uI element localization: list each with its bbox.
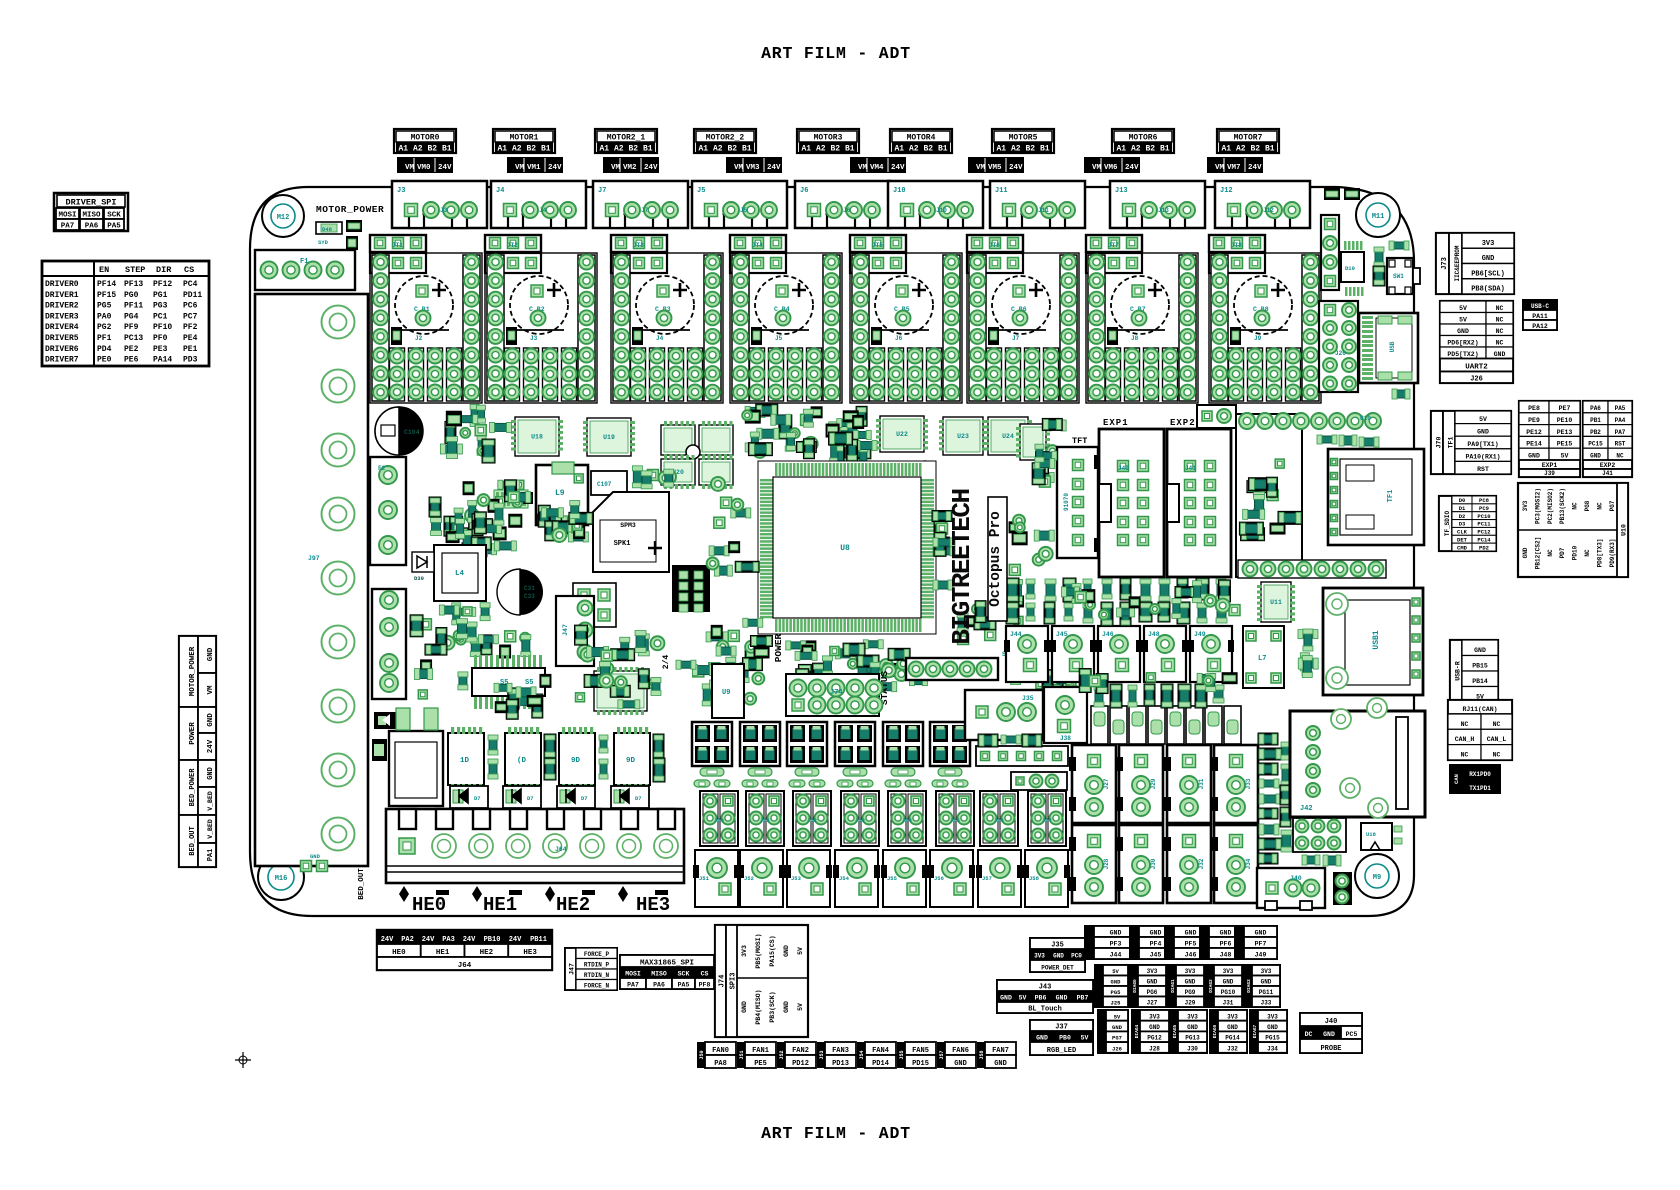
svg-text:NC: NC	[1493, 721, 1501, 728]
svg-text:B2: B2	[727, 145, 737, 154]
svg-text:USB: USB	[1389, 341, 1396, 352]
svg-text:HE2: HE2	[556, 894, 590, 916]
svg-text:J4: J4	[496, 187, 504, 195]
svg-text:PA5: PA5	[107, 223, 121, 231]
svg-text:3V3: 3V3	[1147, 968, 1158, 975]
svg-text:J31: J31	[1223, 1000, 1234, 1007]
svg-text:RGB_LED: RGB_LED	[1047, 1047, 1076, 1055]
svg-text:PB3(SCK): PB3(SCK)	[769, 991, 776, 1022]
svg-text:CLK: CLK	[1457, 529, 1468, 536]
svg-text:J2: J2	[415, 335, 423, 342]
svg-text:D1: D1	[1459, 505, 1466, 512]
svg-text:B1: B1	[1040, 145, 1050, 154]
svg-text:SW1: SW1	[1393, 273, 1404, 280]
svg-text:U9: U9	[722, 689, 730, 697]
svg-text:J61: J61	[760, 817, 771, 824]
svg-text:PC1: PC1	[153, 312, 168, 321]
svg-text:MOTOR7: MOTOR7	[1234, 134, 1263, 143]
svg-text:PE4: PE4	[183, 334, 198, 343]
svg-text:V_BED: V_BED	[207, 819, 214, 839]
svg-text:VM: VM	[976, 164, 986, 172]
svg-text:B2: B2	[427, 145, 437, 154]
svg-text:PE3: PE3	[153, 345, 168, 354]
svg-text:JT4: JT4	[752, 242, 763, 249]
svg-text:D7: D7	[527, 795, 534, 802]
svg-text:GND: GND	[1110, 930, 1122, 937]
svg-text:NC: NC	[1584, 549, 1591, 557]
svg-text:5V: 5V	[797, 947, 804, 955]
svg-text:J11: J11	[1038, 207, 1049, 214]
svg-text:5V: 5V	[1112, 968, 1119, 975]
svg-text:J64: J64	[902, 817, 913, 824]
svg-text:GND: GND	[994, 1060, 1007, 1068]
svg-text:M9: M9	[1373, 874, 1381, 882]
svg-text:24V: 24V	[463, 936, 476, 944]
svg-text:HE2: HE2	[480, 949, 494, 957]
svg-text:3V3: 3V3	[1034, 953, 1045, 960]
svg-text:J34: J34	[1245, 858, 1252, 869]
svg-text:PE0: PE0	[97, 356, 112, 365]
svg-text:J10: J10	[936, 207, 947, 214]
svg-text:3V3: 3V3	[1482, 240, 1495, 248]
svg-text:PE6: PE6	[124, 356, 139, 365]
svg-text:24V: 24V	[1248, 164, 1262, 172]
svg-text:HE1: HE1	[483, 894, 517, 916]
svg-text:J60: J60	[714, 817, 724, 824]
svg-text:PC9: PC9	[1479, 505, 1489, 512]
svg-text:24V: 24V	[1009, 164, 1023, 172]
svg-text:RST: RST	[1615, 441, 1626, 448]
svg-text:J30: J30	[1150, 858, 1157, 869]
svg-text:GND: GND	[1590, 452, 1601, 459]
svg-text:J47: J47	[562, 624, 569, 636]
svg-text:PG3: PG3	[153, 302, 168, 311]
svg-text:ART FILM - ADT: ART FILM - ADT	[761, 44, 911, 63]
svg-text:J58: J58	[1029, 875, 1040, 882]
svg-text:GND: GND	[1220, 930, 1232, 937]
svg-text:JT1: JT1	[392, 242, 403, 249]
svg-text:L4: L4	[455, 570, 465, 578]
svg-text:PG5: PG5	[97, 302, 112, 311]
svg-text:PA7: PA7	[61, 223, 75, 231]
svg-text:J46: J46	[1102, 631, 1114, 638]
svg-text:J57: J57	[982, 875, 992, 882]
svg-text:TF_SDIO: TF_SDIO	[1444, 511, 1451, 537]
svg-text:PG6: PG6	[1147, 989, 1158, 996]
svg-text:GND: GND	[1323, 1031, 1335, 1038]
svg-text:3V3: 3V3	[1261, 968, 1272, 975]
svg-text:D2: D2	[1459, 513, 1466, 520]
svg-text:GND: GND	[1482, 255, 1495, 263]
svg-text:GND: GND	[1000, 995, 1012, 1002]
svg-text:J32: J32	[1198, 858, 1205, 869]
svg-text:24V: 24V	[548, 164, 562, 172]
svg-text:U8: U8	[840, 544, 850, 553]
svg-text:PE9: PE9	[1528, 417, 1540, 424]
svg-text:JT6: JT6	[989, 242, 1000, 249]
svg-text:PG10: PG10	[1221, 989, 1236, 996]
svg-text:PB10: PB10	[484, 936, 501, 944]
svg-text:J55: J55	[887, 875, 898, 882]
svg-text:PF13: PF13	[124, 280, 143, 289]
svg-text:L9: L9	[555, 489, 565, 498]
svg-text:NC: NC	[1461, 721, 1469, 728]
svg-text:A1: A1	[1116, 145, 1126, 154]
svg-text:3V3: 3V3	[1227, 1013, 1238, 1020]
svg-text:J44: J44	[1110, 952, 1122, 959]
svg-text:1D: 1D	[460, 757, 470, 765]
svg-text:GND: GND	[1147, 979, 1158, 986]
svg-text:USB-R: USB-R	[1454, 661, 1461, 681]
svg-text:GND: GND	[1255, 930, 1267, 937]
svg-text:MOTOR2_1: MOTOR2_1	[607, 134, 646, 143]
svg-text:PF12: PF12	[153, 280, 172, 289]
svg-text:PA14: PA14	[153, 356, 172, 365]
svg-text:PD4: PD4	[97, 345, 112, 354]
svg-text:S5: S5	[525, 679, 533, 687]
svg-text:PE14: PE14	[1526, 441, 1542, 448]
svg-text:GND: GND	[954, 1060, 967, 1068]
svg-text:NC: NC	[1616, 452, 1624, 459]
svg-text:J7: J7	[1012, 335, 1020, 342]
svg-text:CAN_L: CAN_L	[1487, 736, 1507, 743]
svg-text:J13: J13	[1115, 187, 1128, 195]
svg-text:J67: J67	[1042, 817, 1052, 824]
svg-text:D7: D7	[581, 795, 588, 802]
svg-text:GND: GND	[783, 945, 790, 957]
svg-text:B2: B2	[1145, 145, 1155, 154]
svg-text:DRIVER7: DRIVER7	[45, 356, 79, 365]
svg-text:U18: U18	[1366, 831, 1377, 838]
svg-text:PC6: PC6	[183, 302, 198, 311]
svg-text:J31: J31	[1198, 778, 1205, 789]
svg-text:PG12: PG12	[1147, 1035, 1162, 1042]
svg-text:PD2: PD2	[1479, 544, 1489, 551]
svg-text:PA0: PA0	[97, 312, 112, 321]
svg-text:5V: 5V	[1459, 316, 1467, 323]
svg-text:(D: (D	[517, 757, 527, 765]
svg-text:PA4: PA4	[1615, 417, 1626, 424]
svg-text:PG7: PG7	[1112, 1035, 1122, 1042]
svg-text:PG8: PG8	[1584, 500, 1591, 511]
svg-text:J45: J45	[1150, 952, 1162, 959]
svg-text:VM6: VM6	[1104, 164, 1118, 172]
svg-text:TFT: TFT	[1072, 436, 1087, 446]
svg-text:D3: D3	[1459, 521, 1466, 528]
svg-text:VM4: VM4	[870, 164, 884, 172]
svg-text:FAN2: FAN2	[792, 1047, 809, 1055]
svg-text:PB6: PB6	[1035, 995, 1047, 1002]
svg-text:PA3: PA3	[442, 936, 455, 944]
svg-text:GND: GND	[1494, 351, 1506, 358]
svg-text:VM: VM	[611, 164, 621, 172]
svg-text:J7: J7	[598, 187, 606, 195]
svg-text:J8: J8	[1131, 335, 1139, 342]
svg-text:BIGTREETECH: BIGTREETECH	[947, 489, 977, 644]
svg-text:VM: VM	[405, 164, 415, 172]
svg-text:GND: GND	[1477, 428, 1489, 435]
svg-text:U23: U23	[957, 433, 969, 440]
svg-text:24V: 24V	[509, 936, 522, 944]
svg-text:ART FILM - ADT: ART FILM - ADT	[761, 1124, 911, 1143]
svg-text:TX1PD1: TX1PD1	[1469, 785, 1491, 792]
svg-text:3V3: 3V3	[1223, 968, 1234, 975]
svg-text:BED_POWER: BED_POWER	[189, 768, 197, 807]
svg-text:POWER: POWER	[773, 633, 784, 662]
svg-text:Octopus Pro: Octopus Pro	[988, 511, 1004, 607]
svg-text:D48: D48	[322, 226, 333, 233]
svg-text:NC: NC	[1496, 316, 1504, 323]
svg-text:VM5: VM5	[988, 164, 1002, 172]
svg-text:NC: NC	[1572, 502, 1579, 510]
svg-text:PC3(MOSI2): PC3(MOSI2)	[1534, 488, 1541, 524]
svg-text:D7: D7	[635, 795, 642, 802]
svg-text:J27: J27	[1103, 778, 1110, 789]
svg-text:EXP2: EXP2	[1600, 462, 1616, 469]
svg-text:J48: J48	[1220, 952, 1232, 959]
svg-text:BED_OUT: BED_OUT	[189, 826, 197, 855]
svg-text:J49: J49	[1194, 631, 1206, 638]
svg-text:J25: J25	[1111, 1000, 1122, 1007]
svg-text:M12: M12	[277, 214, 290, 222]
svg-text:3V3: 3V3	[1149, 1013, 1160, 1020]
svg-text:TF1: TF1	[1387, 490, 1395, 503]
svg-text:IIC&EEPROM: IIC&EEPROM	[1454, 245, 1461, 281]
svg-text:MOTOR0: MOTOR0	[411, 134, 440, 143]
svg-text:PD12: PD12	[792, 1060, 809, 1068]
svg-text:JT3: JT3	[633, 242, 644, 249]
svg-text:PC13: PC13	[124, 334, 143, 343]
svg-text:PA10(RX1): PA10(RX1)	[1465, 454, 1500, 461]
svg-text:U22: U22	[896, 431, 908, 438]
svg-text:DRIVER0: DRIVER0	[45, 280, 79, 289]
svg-text:24V: 24V	[1125, 164, 1139, 172]
svg-text:PE12: PE12	[1526, 429, 1542, 436]
svg-text:HE0: HE0	[392, 949, 406, 957]
svg-text:PC0: PC0	[1071, 953, 1082, 960]
svg-text:PC12: PC12	[1477, 529, 1490, 536]
svg-text:PF15: PF15	[97, 291, 116, 300]
svg-text:EXP2: EXP2	[1170, 418, 1196, 428]
svg-text:C107: C107	[597, 481, 612, 488]
svg-text:PA9[TX1): PA9[TX1)	[1467, 441, 1498, 448]
svg-text:J49: J49	[1255, 952, 1267, 959]
svg-text:PB12[CS2]: PB12[CS2]	[1534, 537, 1541, 569]
svg-text:B1: B1	[541, 145, 551, 154]
svg-text:U18: U18	[531, 434, 543, 441]
svg-text:PB5(MOSI): PB5(MOSI)	[755, 933, 762, 968]
svg-text:A1: A1	[698, 145, 708, 154]
svg-text:DRIVER5: DRIVER5	[45, 334, 79, 343]
svg-text:JT2: JT2	[507, 242, 518, 249]
svg-text:J5: J5	[740, 207, 748, 214]
svg-text:J6: J6	[843, 207, 851, 214]
svg-text:PA8: PA8	[714, 1060, 727, 1068]
svg-text:PC5: PC5	[1346, 1031, 1358, 1038]
svg-text:A1: A1	[1221, 145, 1231, 154]
svg-text:SCK: SCK	[678, 971, 690, 978]
svg-text:RX1PD0: RX1PD0	[1469, 771, 1491, 778]
svg-text:NC: NC	[1493, 752, 1501, 759]
svg-text:PD8[TX3]: PD8[TX3]	[1596, 539, 1603, 568]
svg-text:PE1: PE1	[183, 345, 198, 354]
svg-text:PB6[SCL): PB6[SCL)	[1471, 270, 1505, 278]
svg-text:PROBE: PROBE	[1320, 1045, 1341, 1053]
svg-text:NC: NC	[1496, 339, 1504, 346]
svg-text:B1: B1	[742, 145, 752, 154]
svg-text:24V: 24V	[644, 164, 658, 172]
svg-text:NC: NC	[1496, 305, 1504, 312]
svg-text:VM: VM	[207, 685, 215, 695]
svg-text:HE3: HE3	[523, 949, 537, 957]
svg-text:J3: J3	[440, 207, 448, 214]
svg-text:MOTOR5: MOTOR5	[1009, 134, 1038, 143]
svg-text:CAN: CAN	[1453, 774, 1460, 784]
svg-text:PF9: PF9	[124, 323, 139, 332]
svg-text:PG1: PG1	[153, 291, 168, 300]
svg-text:J6: J6	[895, 335, 903, 342]
svg-text:U24: U24	[1002, 433, 1014, 440]
svg-text:J40: J40	[1325, 1018, 1338, 1026]
svg-text:CS: CS	[184, 265, 194, 275]
svg-text:D10: D10	[1345, 265, 1355, 272]
svg-text:PB8(SDA): PB8(SDA)	[1471, 286, 1505, 294]
svg-text:UART2: UART2	[1465, 364, 1488, 372]
svg-text:J62: J62	[807, 817, 817, 824]
svg-text:GND: GND	[1150, 930, 1162, 937]
svg-text:9D: 9D	[626, 757, 636, 765]
svg-text:5V: 5V	[797, 1003, 804, 1011]
svg-text:J54: J54	[839, 875, 850, 882]
svg-text:PC2(MISO2): PC2(MISO2)	[1547, 488, 1554, 524]
svg-text:PF5: PF5	[1185, 941, 1197, 948]
svg-text:FAN5: FAN5	[912, 1047, 929, 1055]
svg-text:VM: VM	[734, 164, 744, 172]
svg-text:GND: GND	[207, 767, 215, 780]
svg-text:PC10: PC10	[1477, 513, 1490, 520]
svg-text:SPI3: SPI3	[730, 973, 738, 990]
svg-text:J42: J42	[1300, 805, 1313, 813]
svg-text:PB15: PB15	[1472, 663, 1488, 670]
svg-text:PB11: PB11	[530, 936, 547, 944]
svg-text:24V: 24V	[422, 936, 435, 944]
svg-text:J34: J34	[1267, 1045, 1278, 1052]
svg-text:PD6[RX2): PD6[RX2)	[1447, 339, 1478, 346]
svg-text:J40: J40	[1290, 875, 1302, 882]
svg-text:PG14: PG14	[1225, 1035, 1240, 1042]
svg-text:PB2: PB2	[1590, 429, 1601, 436]
svg-text:GND: GND	[741, 1001, 748, 1013]
svg-text:M11: M11	[1372, 213, 1385, 221]
svg-text:B1: B1	[1160, 145, 1170, 154]
svg-text:A2: A2	[1236, 145, 1246, 154]
svg-text:J5: J5	[775, 335, 783, 342]
svg-text:VM: VM	[1215, 164, 1225, 172]
svg-text:JT7: JT7	[1108, 242, 1119, 249]
svg-text:MISO: MISO	[651, 971, 667, 978]
svg-text:GND: GND	[1528, 452, 1540, 459]
svg-text:TF1: TF1	[1447, 437, 1454, 449]
svg-text:J51: J51	[699, 875, 710, 882]
svg-text:FAN7: FAN7	[992, 1047, 1009, 1055]
svg-text:PD15: PD15	[912, 1060, 929, 1068]
svg-text:GND: GND	[1149, 1024, 1160, 1031]
svg-text:PD11: PD11	[183, 291, 202, 300]
svg-text:PE2: PE2	[124, 345, 139, 354]
svg-text:NC: NC	[1596, 502, 1603, 510]
svg-text:J10: J10	[893, 187, 906, 195]
svg-text:J4: J4	[656, 335, 664, 342]
svg-text:3V3: 3V3	[741, 945, 748, 957]
svg-text:A2: A2	[909, 145, 919, 154]
svg-text:GND: GND	[1267, 1024, 1278, 1031]
svg-text:PG2: PG2	[97, 323, 112, 332]
svg-text:J47: J47	[569, 963, 576, 975]
svg-text:NC: NC	[1461, 752, 1469, 759]
svg-text:FAN6: FAN6	[952, 1047, 969, 1055]
svg-text:GND: GND	[1185, 979, 1196, 986]
svg-text:A1: A1	[801, 145, 811, 154]
svg-text:24V: 24V	[438, 164, 452, 172]
svg-text:FAN4: FAN4	[872, 1047, 889, 1055]
svg-text:24V: 24V	[891, 164, 905, 172]
svg-text:BL_Touch: BL_Touch	[1028, 1006, 1062, 1014]
svg-text:J64: J64	[458, 962, 472, 970]
svg-text:POWER: POWER	[189, 722, 197, 745]
svg-text:PE13: PE13	[1557, 429, 1573, 436]
svg-text:PD5[TX2): PD5[TX2)	[1447, 351, 1478, 358]
svg-text:U11: U11	[1270, 599, 1282, 606]
svg-text:PF7: PF7	[1255, 941, 1267, 948]
svg-text:J26: J26	[1112, 1045, 1122, 1052]
svg-text:J45: J45	[1056, 631, 1068, 638]
svg-text:5V: 5V	[1081, 1035, 1089, 1042]
svg-text:CS: CS	[701, 971, 709, 978]
svg-text:POWER_DET: POWER_DET	[1041, 964, 1074, 971]
svg-text:CMD: CMD	[1457, 544, 1468, 551]
svg-text:3V3: 3V3	[1185, 968, 1196, 975]
svg-text:V_BED: V_BED	[207, 791, 214, 811]
svg-text:5V: 5V	[1019, 995, 1027, 1002]
svg-text:A1: A1	[497, 145, 507, 154]
svg-text:GND: GND	[1036, 1035, 1048, 1042]
svg-text:VM7: VM7	[1227, 164, 1241, 172]
svg-text:PC4: PC4	[183, 280, 198, 289]
svg-text:A1: A1	[996, 145, 1006, 154]
svg-text:B2: B2	[526, 145, 536, 154]
svg-text:PB4(MISO): PB4(MISO)	[755, 989, 762, 1024]
svg-text:J37: J37	[1055, 1024, 1068, 1032]
svg-text:J43: J43	[1039, 984, 1052, 992]
svg-text:B1: B1	[442, 145, 452, 154]
svg-text:2/4: 2/4	[662, 655, 671, 670]
svg-text:PF6: PF6	[1220, 941, 1232, 948]
svg-text:J32: J32	[1227, 1045, 1238, 1052]
svg-text:PG11: PG11	[1259, 989, 1274, 996]
svg-text:24V: 24V	[767, 164, 781, 172]
svg-text:5V: 5V	[1114, 1013, 1121, 1020]
svg-text:PE10: PE10	[1557, 417, 1573, 424]
svg-text:GND: GND	[207, 713, 215, 727]
svg-text:PE15: PE15	[1557, 441, 1573, 448]
svg-text:GND: GND	[1261, 979, 1272, 986]
svg-text:U10: U10	[1360, 415, 1371, 422]
svg-text:PA7: PA7	[1615, 429, 1626, 436]
svg-text:B2: B2	[830, 145, 840, 154]
svg-text:PB7: PB7	[1077, 995, 1089, 1002]
svg-text:GND: GND	[1053, 953, 1064, 960]
svg-text:PF0: PF0	[153, 334, 168, 343]
